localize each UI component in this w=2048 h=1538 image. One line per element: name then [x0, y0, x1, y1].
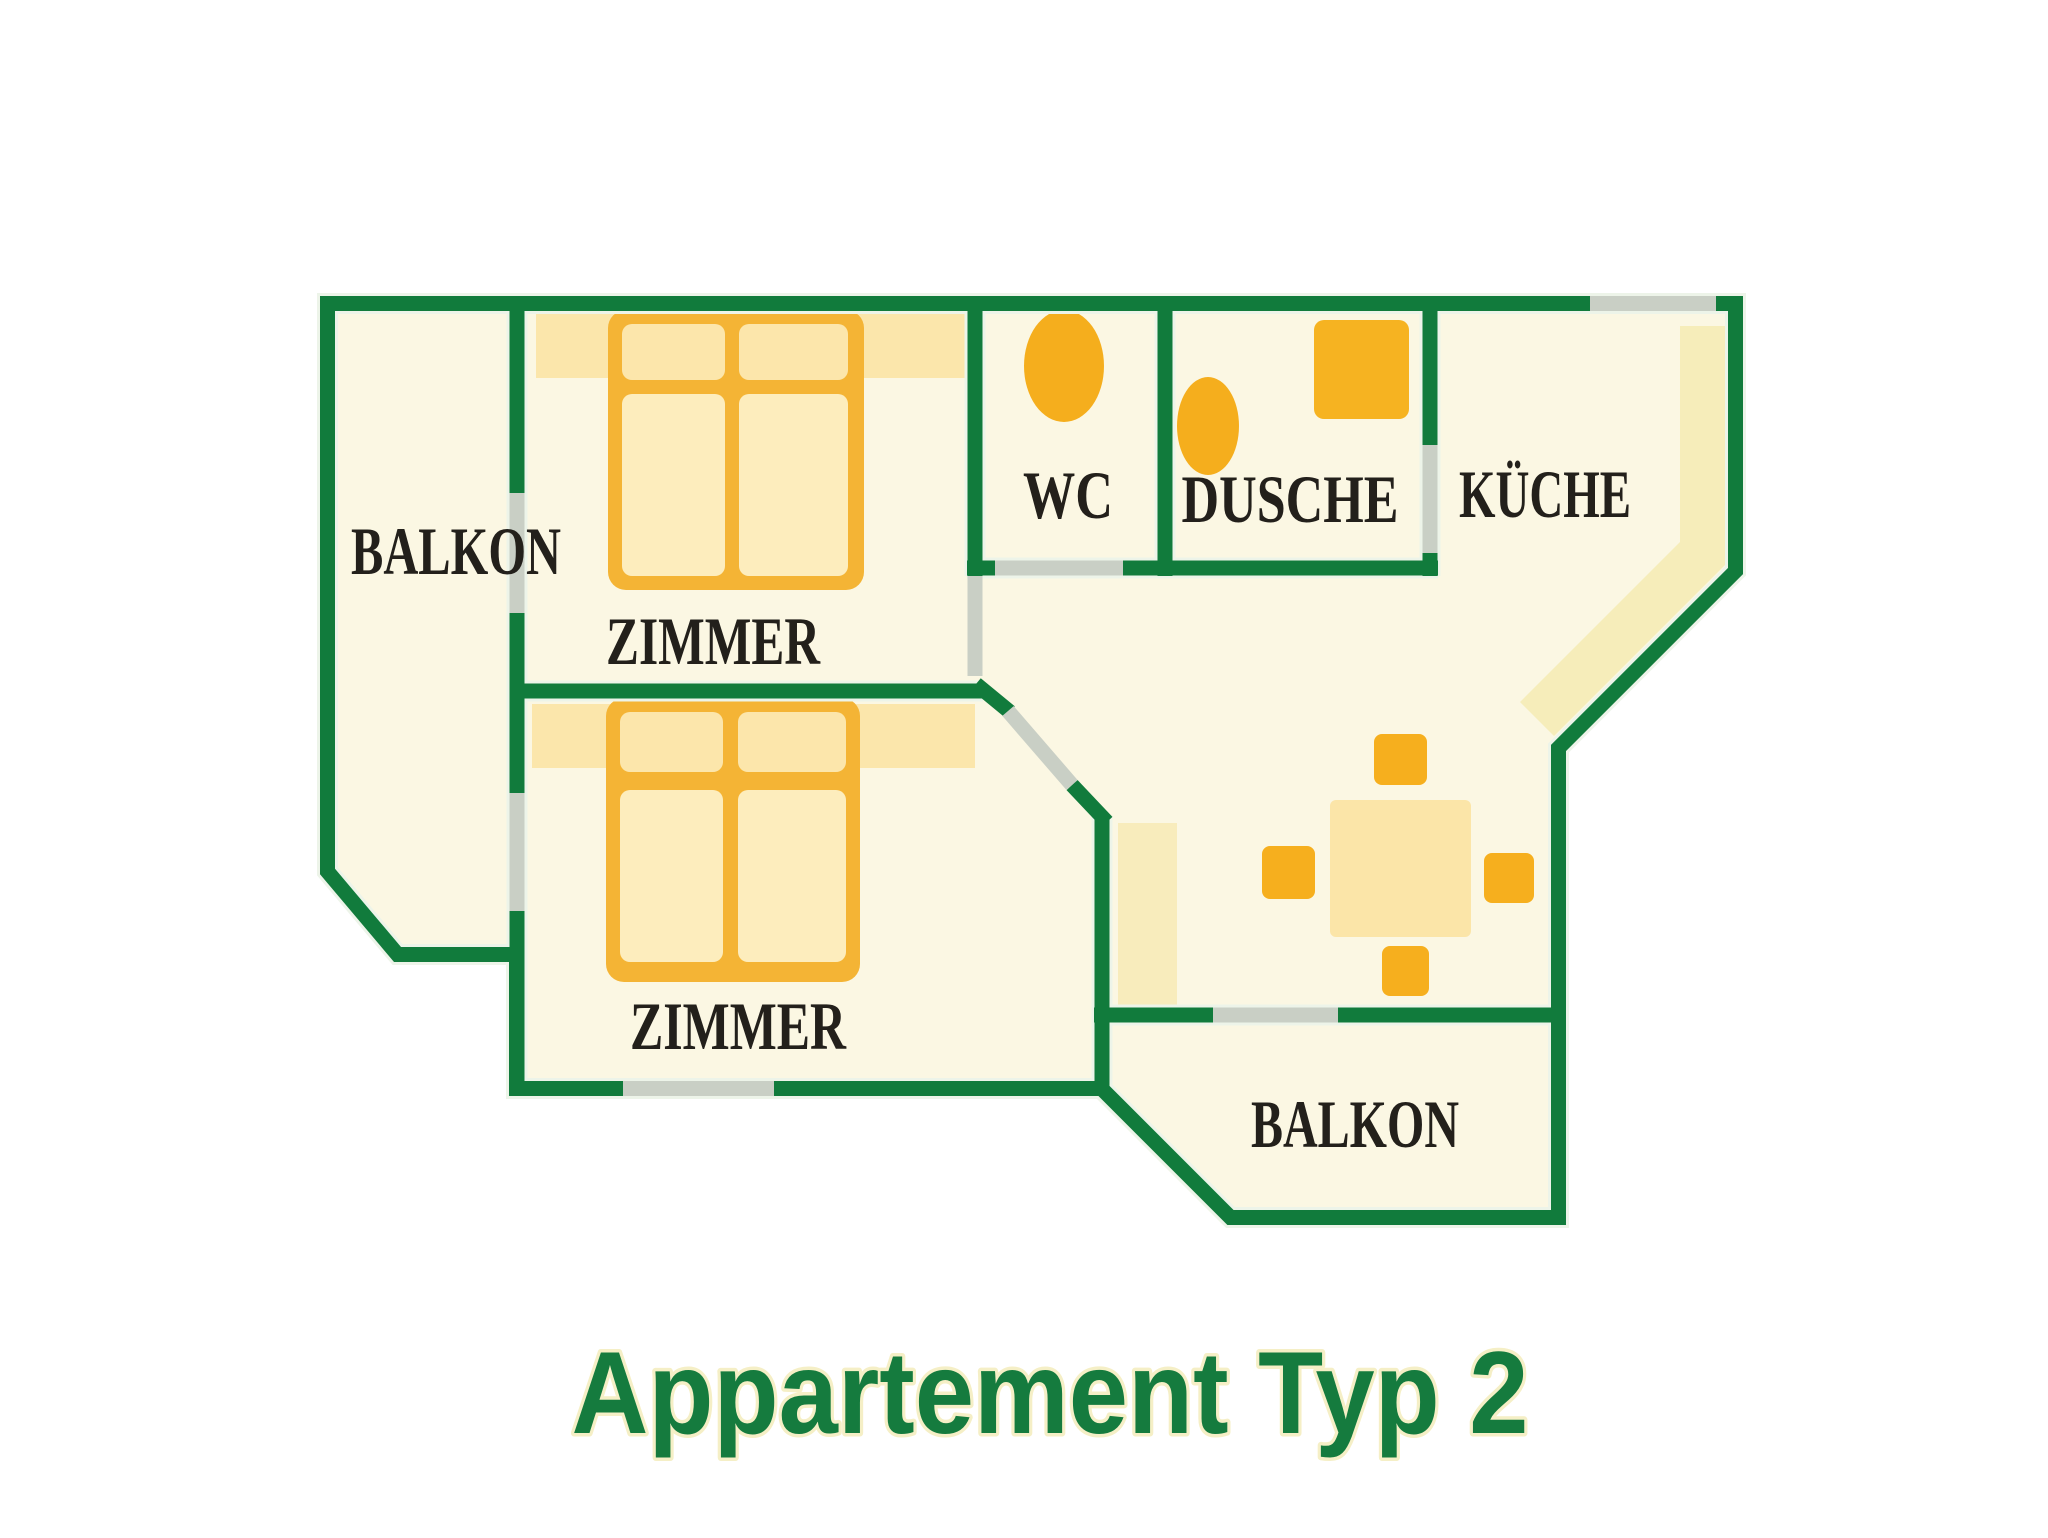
svg-text:BALKON: BALKON	[351, 513, 561, 589]
svg-text:ZIMMER: ZIMMER	[630, 988, 847, 1064]
svg-text:WC: WC	[1023, 457, 1113, 533]
svg-text:ZIMMER: ZIMMER	[606, 603, 821, 679]
svg-text:Appartement Typ 2: Appartement Typ 2	[572, 1327, 1529, 1458]
svg-text:DUSCHE: DUSCHE	[1182, 461, 1399, 537]
svg-text:KÜCHE: KÜCHE	[1459, 456, 1631, 532]
svg-text:BALKON: BALKON	[1251, 1086, 1459, 1162]
